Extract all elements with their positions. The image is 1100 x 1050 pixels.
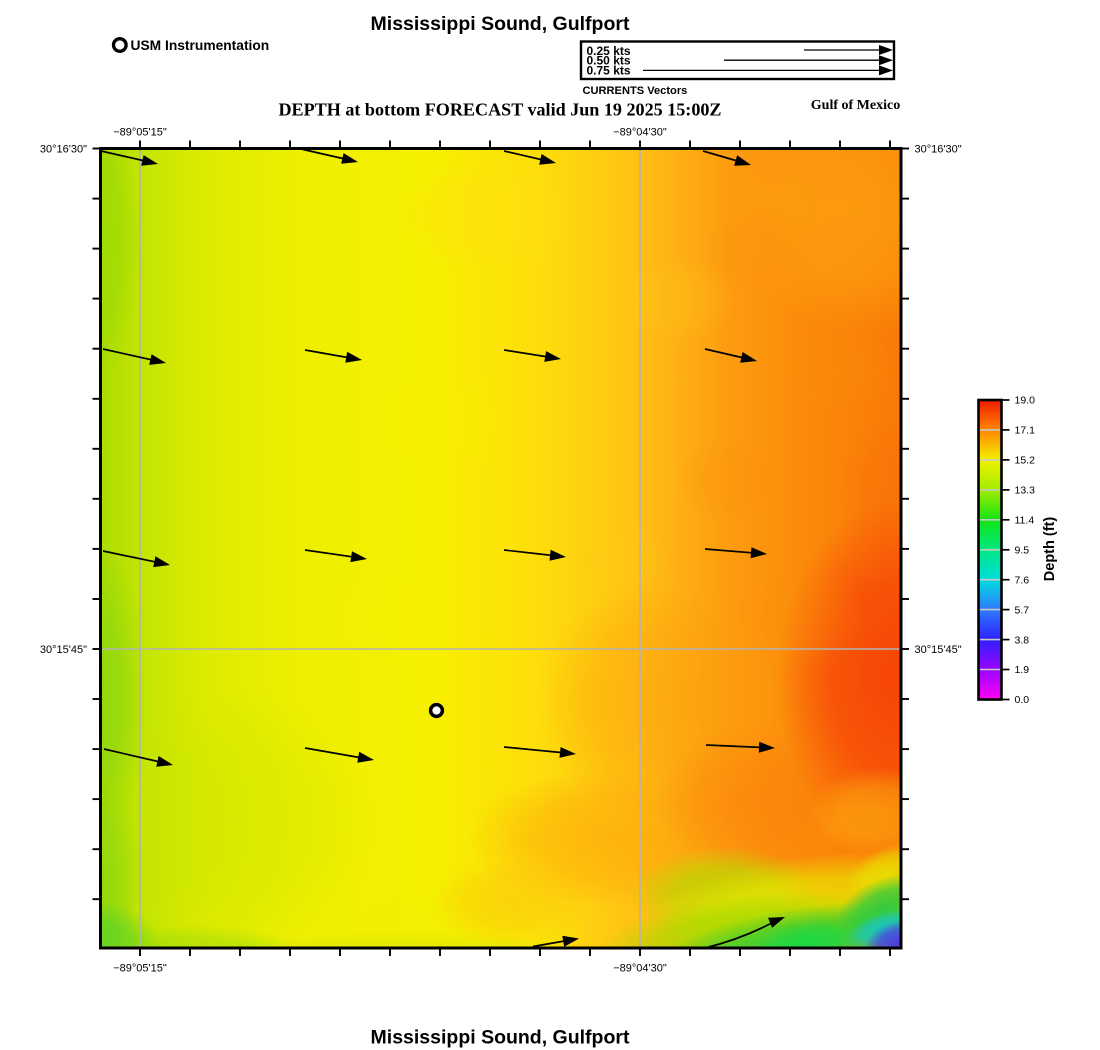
svg-text:Depth (ft): Depth (ft) <box>1042 517 1058 582</box>
svg-text:0.0: 0.0 <box>1015 694 1030 706</box>
svg-text:DEPTH at bottom FORECAST valid: DEPTH at bottom FORECAST valid Jun 19 20… <box>278 100 721 120</box>
svg-text:−89°05'15": −89°05'15" <box>113 963 167 975</box>
svg-text:Mississippi Sound, Gulfport: Mississippi Sound, Gulfport <box>371 13 630 35</box>
svg-text:30°15'45": 30°15'45" <box>40 644 87 656</box>
svg-text:30°15'45": 30°15'45" <box>915 644 962 656</box>
svg-text:−89°04'30": −89°04'30" <box>613 127 667 139</box>
svg-text:11.4: 11.4 <box>1015 515 1035 527</box>
svg-text:19.0: 19.0 <box>1015 395 1036 407</box>
svg-text:17.1: 17.1 <box>1015 425 1036 437</box>
svg-text:CURRENTS Vectors: CURRENTS Vectors <box>583 85 688 97</box>
svg-text:30°16'30": 30°16'30" <box>40 144 87 156</box>
svg-text:Mississippi Sound, Gulfport: Mississippi Sound, Gulfport <box>371 1027 630 1049</box>
svg-text:0.75 kts: 0.75 kts <box>587 63 631 77</box>
svg-text:5.7: 5.7 <box>1015 604 1030 616</box>
svg-text:9.5: 9.5 <box>1015 545 1030 557</box>
svg-text:−89°05'15": −89°05'15" <box>113 127 167 139</box>
svg-text:30°16'30": 30°16'30" <box>915 144 962 156</box>
svg-text:15.2: 15.2 <box>1015 455 1036 467</box>
svg-text:Gulf of Mexico: Gulf of Mexico <box>811 98 900 113</box>
svg-text:−89°04'30": −89°04'30" <box>613 963 667 975</box>
svg-text:7.6: 7.6 <box>1015 574 1030 586</box>
svg-text:13.3: 13.3 <box>1015 485 1036 497</box>
svg-text:3.8: 3.8 <box>1015 634 1030 646</box>
svg-text:1.9: 1.9 <box>1015 664 1030 676</box>
svg-text:USM Instrumentation: USM Instrumentation <box>131 38 270 53</box>
